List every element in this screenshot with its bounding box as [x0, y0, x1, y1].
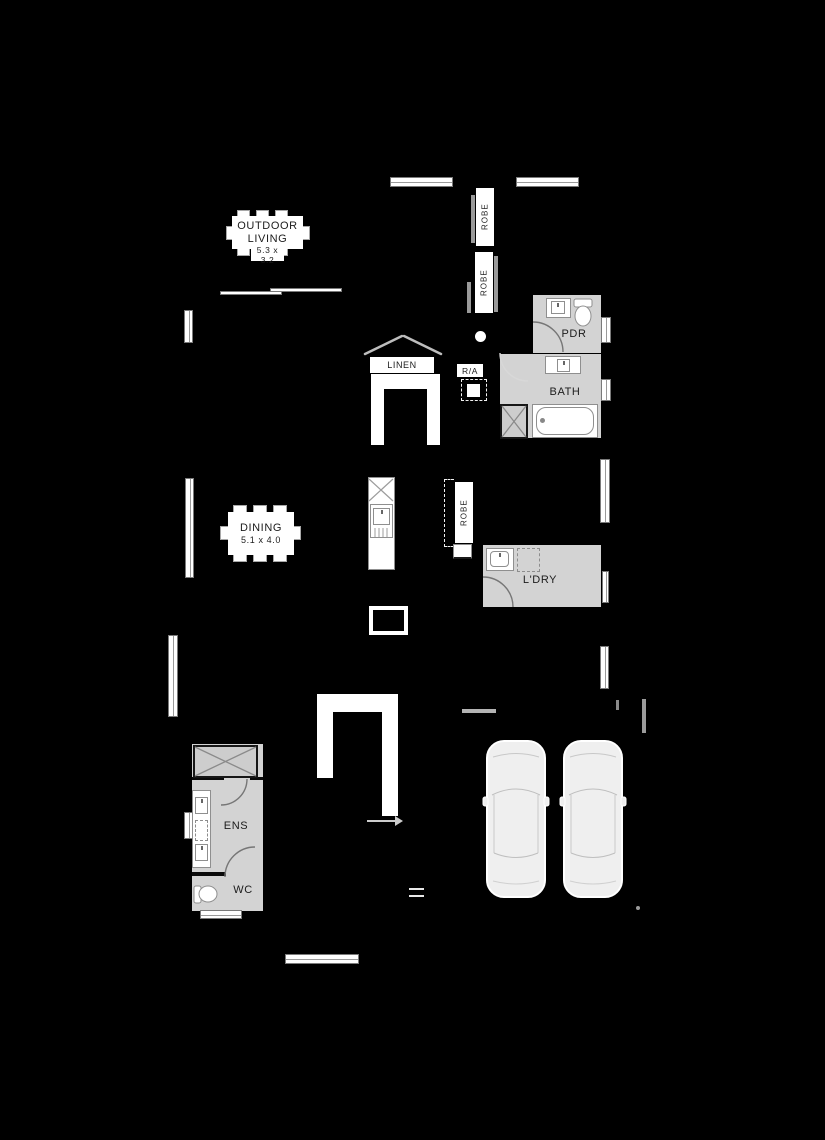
laundry-label: L'DRY: [505, 572, 575, 588]
bathtub-tap: [540, 418, 545, 423]
window-wc: [200, 910, 242, 919]
robe-track: [471, 195, 475, 243]
dining-label: DINING: [240, 521, 282, 535]
window-right-1: [600, 459, 610, 523]
linen-cupboard-left: [371, 389, 384, 445]
kitchen-island: [369, 606, 408, 635]
powder-sink: [551, 301, 565, 314]
garage-mark: [462, 709, 496, 713]
floor-plan: OUTDOOR LIVING 5.3 x 3.2 DINING 5.1 x 4.…: [0, 0, 825, 1140]
robe-2-label: ROBE: [475, 252, 493, 313]
linen-cupboard-top: [371, 374, 440, 389]
robe-3: ROBE: [455, 482, 473, 543]
garage-mark: [642, 699, 646, 733]
car-2: [560, 741, 626, 897]
robe-outline-dashed: [444, 479, 454, 547]
window-right-2: [600, 646, 609, 689]
garage-dot: [636, 906, 640, 910]
washer-space: [517, 548, 540, 572]
robe-1-label: ROBE: [476, 188, 494, 246]
garage-mark: [616, 700, 619, 710]
window-left-2: [185, 478, 194, 578]
outdoor-living-label: LIVING: [248, 233, 288, 246]
bath-shower: [500, 404, 528, 439]
plan-linework: [0, 0, 825, 1140]
window-left-1: [184, 310, 193, 343]
ensuite-sink-2: [195, 844, 208, 861]
garage-step: [409, 888, 424, 897]
return-air-label: R/A: [457, 364, 483, 377]
window-top-right: [516, 177, 579, 187]
cupboard: [453, 544, 472, 559]
powder-label: PDR: [551, 327, 597, 341]
wc-wall: [192, 872, 226, 876]
ensuite-vanity-middle: [195, 820, 208, 841]
linen-door-lines: [365, 336, 441, 354]
dining-table: DINING 5.1 x 4.0: [228, 512, 294, 555]
outdoor-living-dimensions: 5.3 x 3.2: [251, 248, 284, 261]
wir-unit-right: [382, 712, 398, 816]
chair: [237, 248, 250, 256]
robe-2: ROBE: [475, 252, 493, 313]
ensuite-label: ENS: [216, 819, 256, 833]
ensuite-sink-1: [195, 797, 208, 814]
bath-sink: [557, 359, 570, 372]
window-powder: [601, 317, 611, 343]
window-laundry: [602, 571, 609, 603]
robe-track: [494, 256, 498, 312]
linen-cupboard-right: [427, 389, 440, 445]
dining-dimensions: 5.1 x 4.0: [241, 535, 281, 547]
outdoor-living-label: OUTDOOR: [237, 220, 297, 233]
linen-label-box: LINEN: [370, 357, 434, 373]
return-air-core: [467, 384, 480, 397]
ceiling-marker: [475, 331, 486, 342]
window-bottom: [285, 954, 359, 964]
bath-label: BATH: [535, 384, 595, 399]
kitchen-sink: [373, 508, 390, 525]
wir-unit-top: [317, 694, 398, 712]
wc-label: WC: [226, 883, 260, 897]
sliding-door-leaf: [270, 288, 342, 292]
sliding-arrow: [367, 816, 403, 826]
robe-1: ROBE: [476, 188, 494, 246]
window-top-left: [390, 177, 453, 187]
ensuite-shower: [193, 745, 258, 778]
robe-track: [467, 282, 471, 313]
car-1: [483, 741, 549, 897]
window-left-3: [168, 635, 178, 717]
laundry-sink: [490, 551, 509, 567]
window-bath: [601, 379, 611, 401]
chair: [302, 226, 310, 240]
wir-unit-left: [317, 712, 333, 778]
robe-3-label: ROBE: [455, 482, 473, 543]
